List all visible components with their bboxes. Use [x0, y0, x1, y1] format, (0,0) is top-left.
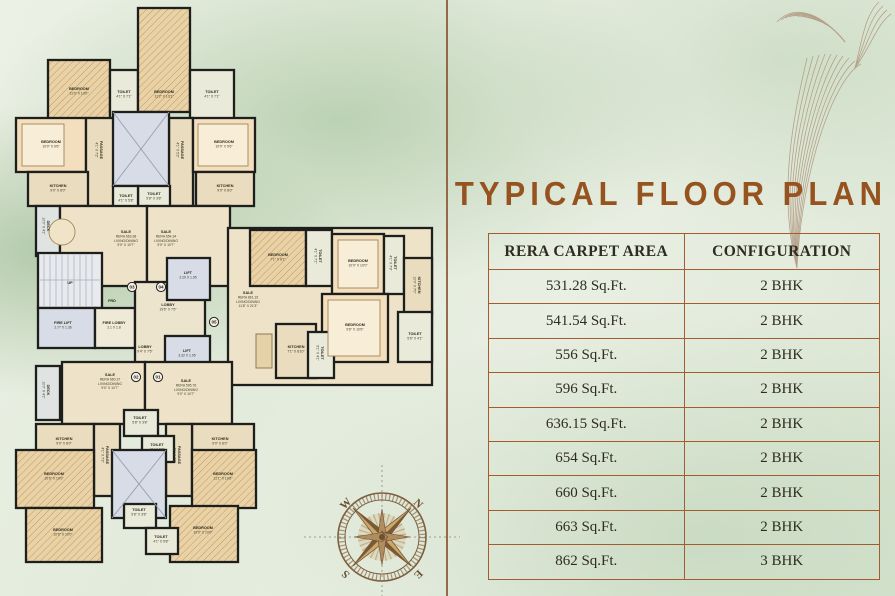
room-label: BEDROOM10'6" X 10'0" — [53, 528, 73, 536]
brochure-page: BEDROOM11'0" X 13'0"TOILET4'1" X 7'1"BED… — [0, 0, 895, 596]
room-label: TOILET4'1" X 7'1" — [116, 90, 132, 98]
area-table-head: RERA CARPET AREA CONFIGURATION — [489, 234, 880, 270]
info-panel: TYPICAL FLOOR PLAN RERA CARPET AREA CONF… — [447, 0, 895, 596]
room-label: KITCHEN7'1" X 8'10" — [287, 345, 305, 353]
room-label: BEDROOM11'1" X 10'6" — [213, 472, 233, 480]
room-label: TOILET5'6" X 4'1" — [407, 332, 423, 340]
compass-east-label: E — [411, 567, 425, 581]
room-label: TOILET4'1" X 7'3" — [389, 255, 397, 271]
room-label: TOILET5'8" X 3'8" — [132, 416, 148, 424]
configuration-cell: 2 BHK — [684, 510, 880, 544]
room-label: TOILET5'8" X 3'8" — [146, 192, 162, 200]
page-title: TYPICAL FLOOR PLAN — [447, 175, 895, 214]
room-label: TOILET4'1" X 5'8" — [118, 194, 134, 202]
area-cell: 531.28 Sq.Ft. — [489, 270, 685, 304]
compass-rose: W N S E — [304, 465, 460, 596]
configuration-cell: 2 BHK — [684, 407, 880, 441]
configuration-cell: 2 BHK — [684, 270, 880, 304]
area-cell: 862 Sq.Ft. — [489, 545, 685, 579]
room-label: BEDROOM9'6" X 10'6" — [345, 323, 365, 331]
room-label: PASSAGE4'1" X 7'2" — [173, 446, 181, 465]
room-label: KITCHEN9'0" X 8'0" — [50, 184, 67, 192]
room-label: TOILET4'1" X 7'1" — [204, 90, 220, 98]
room-label: PASSAGE4'1" X 7'2" — [95, 141, 103, 160]
table-row: 654 Sq.Ft.2 BHK — [489, 441, 880, 475]
table-row: 660 Sq.Ft.2 BHK — [489, 476, 880, 510]
room-label: BEDROOM11'2" X 13'1" — [154, 90, 174, 98]
table-row: 663 Sq.Ft.2 BHK — [489, 510, 880, 544]
sofa — [49, 219, 75, 245]
room-label: KITCHEN10'0" X 7'0" — [413, 276, 421, 294]
room-label: TOILET4'1" X 7'1" — [314, 248, 322, 264]
unit-badge-number: 04 — [158, 285, 164, 290]
floor-plan: BEDROOM11'0" X 13'0"TOILET4'1" X 7'1"BED… — [0, 0, 460, 596]
configuration-cell: 3 BHK — [684, 545, 880, 579]
area-cell: 654 Sq.Ft. — [489, 441, 685, 475]
room-label: TOILET5'8" X 3'8" — [131, 508, 147, 516]
unit-badge-number: 01 — [155, 375, 161, 380]
table-header-row: RERA CARPET AREA CONFIGURATION — [489, 234, 880, 270]
header-configuration: CONFIGURATION — [684, 234, 880, 270]
room-label: KITCHEN9'0" X 8'0" — [212, 437, 229, 445]
area-cell: 636.15 Sq.Ft. — [489, 407, 685, 441]
area-cell: 660 Sq.Ft. — [489, 476, 685, 510]
dining-table — [256, 334, 272, 368]
room-label: KITCHEN9'0" X 8'0" — [56, 437, 73, 445]
room — [86, 118, 114, 206]
room-label: BEDROOM11'0" X 13'0" — [69, 87, 89, 95]
configuration-cell: 2 BHK — [684, 441, 880, 475]
room-label: BEDROOM10'6" X 10'0" — [44, 472, 64, 480]
unit-badge-number: 05 — [211, 320, 217, 325]
room-label: BEDROOM10'0" X 9'6" — [41, 140, 61, 148]
compass-south-label: S — [340, 568, 353, 581]
room-label: KITCHEN9'0" X 8'0" — [217, 184, 234, 192]
configuration-cell: 2 BHK — [684, 304, 880, 338]
room-label: PASSAGE4'1" X 7'2" — [101, 446, 109, 465]
room-label: BEDROOM10'0" X 10'0" — [348, 259, 368, 267]
configuration-cell: 2 BHK — [684, 476, 880, 510]
room-label: LOBBY9'4" X 7'5" — [137, 345, 153, 353]
table-row: 541.54 Sq.Ft.2 BHK — [489, 304, 880, 338]
unit-badge-number: 02 — [133, 375, 139, 380]
configuration-cell: 2 BHK — [684, 373, 880, 407]
configuration-cell: 2 BHK — [684, 338, 880, 372]
area-cell: 541.54 Sq.Ft. — [489, 304, 685, 338]
table-row: 636.15 Sq.Ft.2 BHK — [489, 407, 880, 441]
room-label: BEDROOM10'0" X 10'0" — [193, 526, 213, 534]
room-label: PASSAGE4'1" X 5'2" — [176, 141, 184, 160]
room-label: FIRE LIFT2.77 X 1.36 — [54, 321, 72, 329]
table-row: 531.28 Sq.Ft.2 BHK — [489, 270, 880, 304]
area-table: RERA CARPET AREA CONFIGURATION 531.28 Sq… — [488, 233, 880, 580]
compass-star — [349, 504, 415, 570]
area-cell: 596 Sq.Ft. — [489, 373, 685, 407]
unit-badge-number: 03 — [129, 285, 135, 290]
area-cell: 663 Sq.Ft. — [489, 510, 685, 544]
table-row: 556 Sq.Ft.2 BHK — [489, 338, 880, 372]
area-cell: 556 Sq.Ft. — [489, 338, 685, 372]
header-rera-carpet-area: RERA CARPET AREA — [489, 234, 685, 270]
table-row: 862 Sq.Ft.3 BHK — [489, 545, 880, 579]
table-row: 596 Sq.Ft.2 BHK — [489, 373, 880, 407]
room-label: TOILET4'1" X 5'8" — [149, 443, 165, 451]
room-label: TOILET4'1" X 5'8" — [153, 535, 169, 543]
room-label: TOILET5'1" X 4'1" — [316, 345, 324, 361]
room-label: UP — [67, 281, 73, 285]
room-label: FRD — [108, 299, 116, 303]
table-body: 531.28 Sq.Ft.2 BHK541.54 Sq.Ft.2 BHK556 … — [489, 270, 880, 580]
room — [169, 118, 193, 206]
room-label: BEDROOM10'0" X 9'6" — [214, 140, 234, 148]
room-label: BEDROOM7'1" X 8'1" — [268, 253, 288, 261]
